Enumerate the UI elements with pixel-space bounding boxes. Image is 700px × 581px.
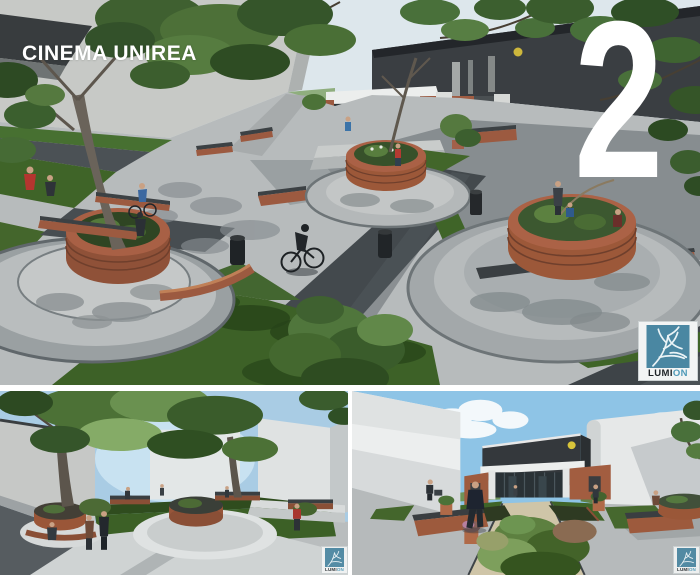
- lumion-tree-icon: [324, 548, 345, 567]
- lumion-tree-icon: [676, 548, 697, 567]
- page-title: CINEMA UNIREA: [22, 42, 197, 66]
- lumion-tree-icon: [646, 325, 690, 368]
- lumion-logo-text: LUMION: [677, 567, 696, 573]
- lumion-logo-text: LUMION: [325, 567, 344, 573]
- lumion-logo-text: LUMION: [648, 368, 688, 379]
- street-view-render-panel: LUMION: [0, 391, 348, 575]
- lumion-watermark: LUMION: [639, 322, 697, 380]
- facade-logo-dot: [514, 48, 523, 57]
- page-number: 2: [574, 16, 664, 184]
- right-round-planter: [658, 494, 700, 520]
- street-view-render-image: [0, 391, 348, 575]
- lumion-watermark-small: LUMION: [322, 547, 347, 573]
- main-render-panel: CINEMA UNIREA 2 LUMION: [0, 0, 700, 385]
- lumion-watermark-small: LUMION: [674, 547, 699, 573]
- entrance-view-render-panel: LUMION: [352, 391, 700, 575]
- entrance-view-render-image: [352, 391, 700, 575]
